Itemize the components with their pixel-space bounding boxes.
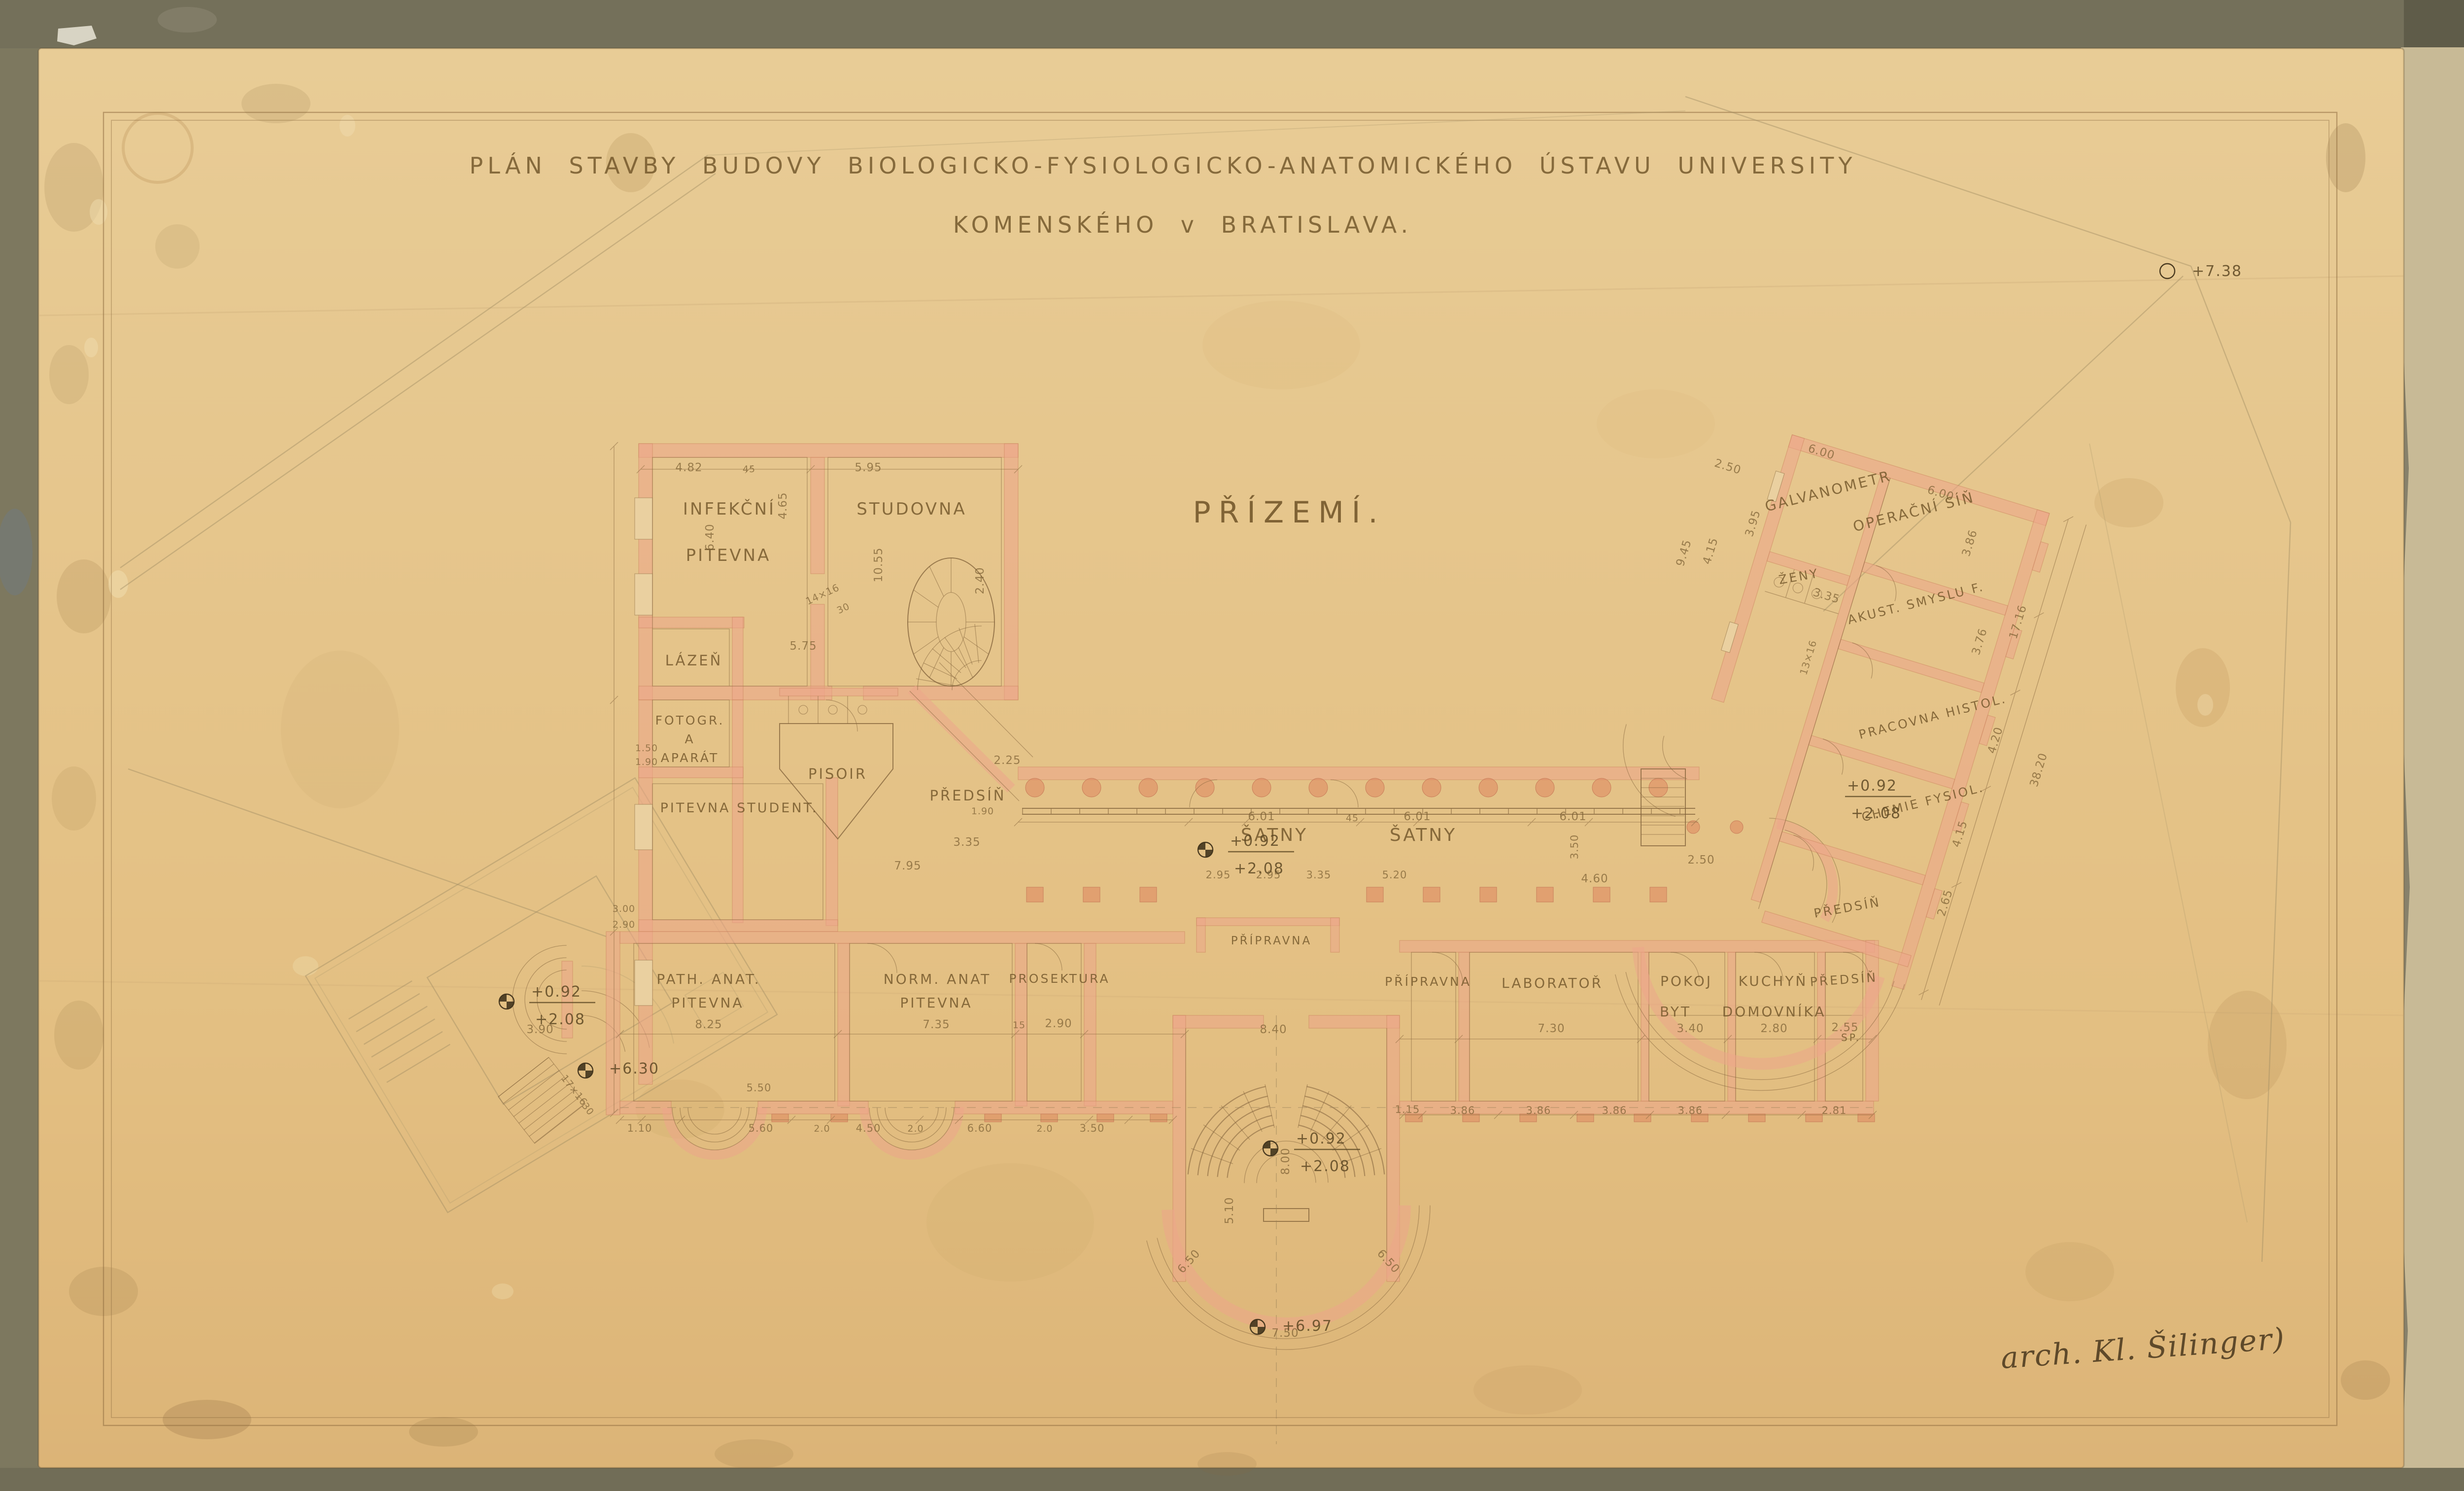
room-label: NORM. ANAT xyxy=(884,971,992,987)
dimension-label: 2.80 xyxy=(1760,1022,1787,1035)
room-label: PATH. ANAT. xyxy=(656,971,760,987)
dimension-label: 3.00 xyxy=(613,903,635,914)
dimension-label: 2.95 xyxy=(1206,869,1231,881)
dimension-label: 2.25 xyxy=(993,754,1021,767)
dimension-label: 2.81 xyxy=(1822,1105,1847,1116)
room-label: KUCHYŇ xyxy=(1739,972,1808,989)
room-label: LABORATOŘ xyxy=(1502,974,1603,991)
board-corner xyxy=(2404,0,2464,48)
dimension-label: 2.90 xyxy=(613,919,635,930)
dimension-label: 4.65 xyxy=(777,492,789,519)
dimension-label: 1.50 xyxy=(635,743,658,754)
dimension-label: 1.90 xyxy=(971,806,994,817)
room-label: STUDOVNA xyxy=(856,499,967,519)
level-value: +0.92 xyxy=(531,983,582,1001)
dimension-label: 3.86 xyxy=(1602,1105,1627,1116)
room-label: INFEKČNÍ xyxy=(683,499,776,519)
room-label: PISOIR xyxy=(808,765,867,782)
dimension-label: 3.86 xyxy=(1526,1105,1551,1116)
room-label: PITEVNA xyxy=(900,995,972,1011)
level-value: +2.08 xyxy=(535,1011,585,1028)
dimension-label: 2.50 xyxy=(1687,854,1714,867)
level-value: +6.97 xyxy=(1282,1318,1333,1335)
dimension-label: 2.0 xyxy=(1036,1123,1053,1134)
room-label: PITEVNA xyxy=(686,546,771,565)
dimension-label: 8.00 xyxy=(1279,1147,1292,1175)
sheet-title-line1: PLÁN STAVBY BUDOVY BIOLOGICKO-FYSIOLOGIC… xyxy=(470,152,1857,179)
dimension-label: 4.60 xyxy=(1581,872,1608,885)
board-top-edge xyxy=(0,0,2464,48)
level-value: +0.92 xyxy=(1230,832,1280,850)
sheet-title-line2: KOMENSKÉHO v BRATISLAVA. xyxy=(953,211,1412,238)
dimension-label: 7.30 xyxy=(1538,1022,1565,1035)
dimension-label: 2.90 xyxy=(1045,1017,1072,1030)
room-label: ŠATNY xyxy=(1390,825,1457,845)
level-value: +7.38 xyxy=(2192,263,2242,280)
room-label: PŘÍPRAVNA xyxy=(1385,974,1472,989)
dimension-label: 2.0 xyxy=(814,1123,830,1134)
dimension-label: 3.35 xyxy=(953,836,980,849)
room-label: PITEVNA xyxy=(671,995,744,1011)
room-label: LÁZEŇ xyxy=(665,652,723,669)
level-value: +2.08 xyxy=(1234,860,1284,877)
dimension-label: 6.01 xyxy=(1403,810,1431,823)
torn-paper-strip xyxy=(2398,47,2464,1468)
dimension-label: 4.50 xyxy=(856,1122,881,1134)
room-label: FOTOGR. xyxy=(655,713,725,728)
dimension-label: 8.40 xyxy=(1260,1023,1287,1036)
room-label: PROSEKTURA xyxy=(1009,971,1110,986)
dimension-label: 3.40 xyxy=(1677,1022,1704,1035)
dimension-label: 5.10 xyxy=(1223,1197,1236,1224)
level-value: +2.08 xyxy=(1300,1158,1350,1175)
dimension-label: 5.95 xyxy=(855,461,882,474)
room-label: BYT xyxy=(1660,1004,1691,1020)
board-left-edge xyxy=(0,48,38,1491)
dimension-label: 1.10 xyxy=(627,1122,652,1134)
dimension-label: 3.50 xyxy=(1569,834,1580,860)
dimension-label: 2.55 xyxy=(1831,1021,1858,1034)
dimension-label: 3.86 xyxy=(1450,1105,1475,1116)
room-label: POKOJ xyxy=(1660,973,1712,989)
dimension-label: 5.20 xyxy=(1382,869,1407,881)
dimension-label: 6.01 xyxy=(1248,810,1275,823)
dimension-label: 1.90 xyxy=(635,757,658,767)
dimension-label: 7.95 xyxy=(894,860,921,872)
dimension-label: 7.35 xyxy=(923,1018,950,1031)
dimension-label: 45 xyxy=(743,464,755,475)
dimension-label: 3.35 xyxy=(1306,869,1332,881)
level-value: +2.08 xyxy=(1851,805,1901,822)
dimension-label: 3.86 xyxy=(1678,1105,1703,1116)
dimension-label: 10.55 xyxy=(872,548,885,583)
floor-label: PŘÍZEMÍ. xyxy=(1193,494,1385,530)
dimension-label: 2.0 xyxy=(907,1123,924,1134)
dimension-label: 3.50 xyxy=(1080,1122,1105,1134)
dimension-label: 15 xyxy=(1013,1020,1026,1031)
dimension-label: 5.75 xyxy=(789,640,817,653)
dimension-label: 8.25 xyxy=(695,1018,722,1031)
room-label: APARÁT xyxy=(661,751,719,765)
dimension-label: 5.50 xyxy=(747,1082,772,1094)
dimension-label: 6.60 xyxy=(967,1122,992,1134)
room-label: PŘÍPRAVNA xyxy=(1231,934,1312,947)
level-value: +0.92 xyxy=(1296,1130,1346,1147)
room-label: DOMOVNÍKA xyxy=(1722,1003,1826,1020)
room-label: PŘEDSÍŇ xyxy=(930,787,1006,804)
room-label: A xyxy=(684,732,695,746)
floorplan-canvas: INFEKČNÍPITEVNASTUDOVNALÁZEŇFOTOGR.AAPAR… xyxy=(0,0,2464,1491)
dimension-label: 45 xyxy=(1346,813,1359,824)
dimension-label: 1.15 xyxy=(1395,1104,1420,1115)
dimension-label: 4.82 xyxy=(675,461,702,474)
scanned-plan-sheet: INFEKČNÍPITEVNASTUDOVNALÁZEŇFOTOGR.AAPAR… xyxy=(0,0,2464,1491)
board-scuff xyxy=(158,7,217,33)
dimension-label: 6.40 xyxy=(704,523,717,551)
level-value: +0.92 xyxy=(1847,777,1897,795)
dimension-label: 5.60 xyxy=(749,1122,774,1134)
dimension-label: 6.01 xyxy=(1559,810,1586,823)
dimension-label: 2.40 xyxy=(974,567,987,594)
level-value: +6.30 xyxy=(609,1060,659,1077)
room-label: PITEVNA STUDENT. xyxy=(660,800,819,816)
